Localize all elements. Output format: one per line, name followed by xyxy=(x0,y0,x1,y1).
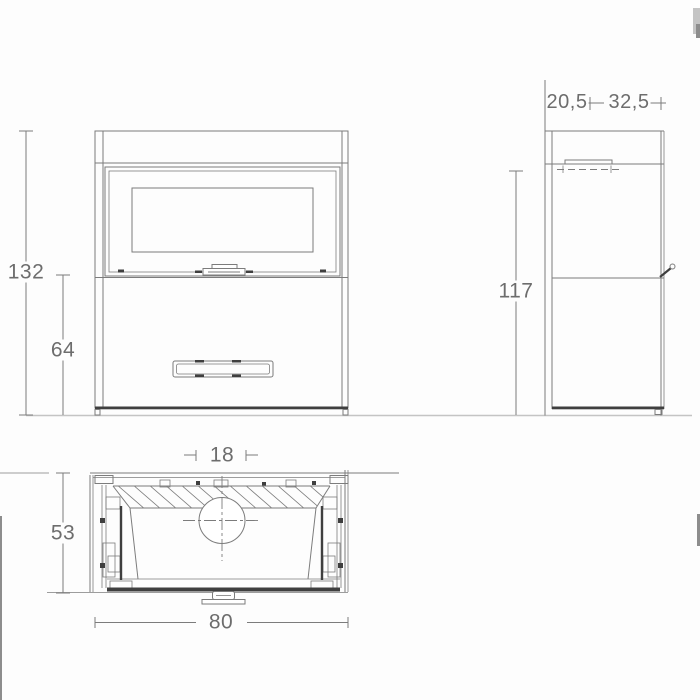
dim-plan-depth: 53 xyxy=(49,523,77,544)
plan-left-wall-assembly xyxy=(100,485,132,589)
front-view xyxy=(95,131,348,415)
dim-plan-flue-diameter: 18 xyxy=(208,445,236,466)
dim-front-total-height: 132 xyxy=(6,262,47,283)
front-ash-drawer xyxy=(173,360,273,377)
side-view xyxy=(545,80,675,416)
edge-marks xyxy=(0,8,700,700)
dim-side-top-rear-depth: 32,5 xyxy=(608,92,651,112)
dim-side-body-height: 117 xyxy=(497,281,536,302)
side-flue-detail xyxy=(557,160,619,173)
plan-right-wall-assembly xyxy=(311,485,343,589)
front-door-handle xyxy=(195,265,253,276)
plan-front-handle xyxy=(202,592,245,605)
front-glass xyxy=(132,188,313,252)
dim-front-lower-height: 64 xyxy=(49,340,77,361)
side-door-handle xyxy=(660,264,675,277)
technical-drawing-canvas xyxy=(0,0,700,700)
technical-drawing-page: 132 64 20,5 32,5 117 18 53 80 xyxy=(0,0,700,700)
dim-plan-width: 80 xyxy=(207,612,235,633)
dim-side-top-front-depth: 20,5 xyxy=(546,92,589,112)
